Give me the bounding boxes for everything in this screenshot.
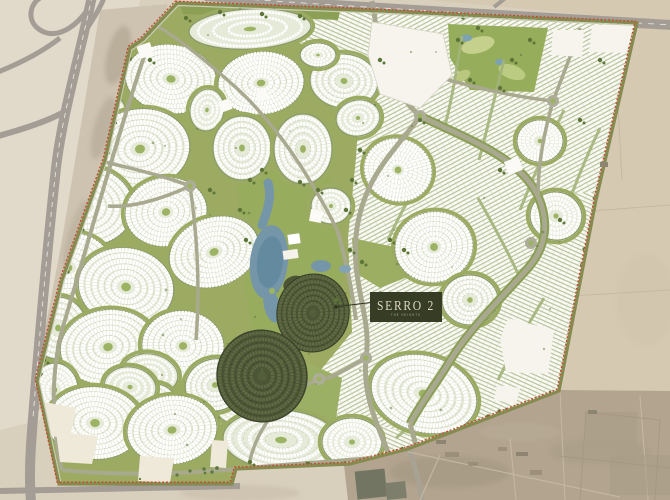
svg-text:THE HEIGHTS: THE HEIGHTS [391,313,421,317]
svg-text:SERRO 2: SERRO 2 [377,298,435,313]
